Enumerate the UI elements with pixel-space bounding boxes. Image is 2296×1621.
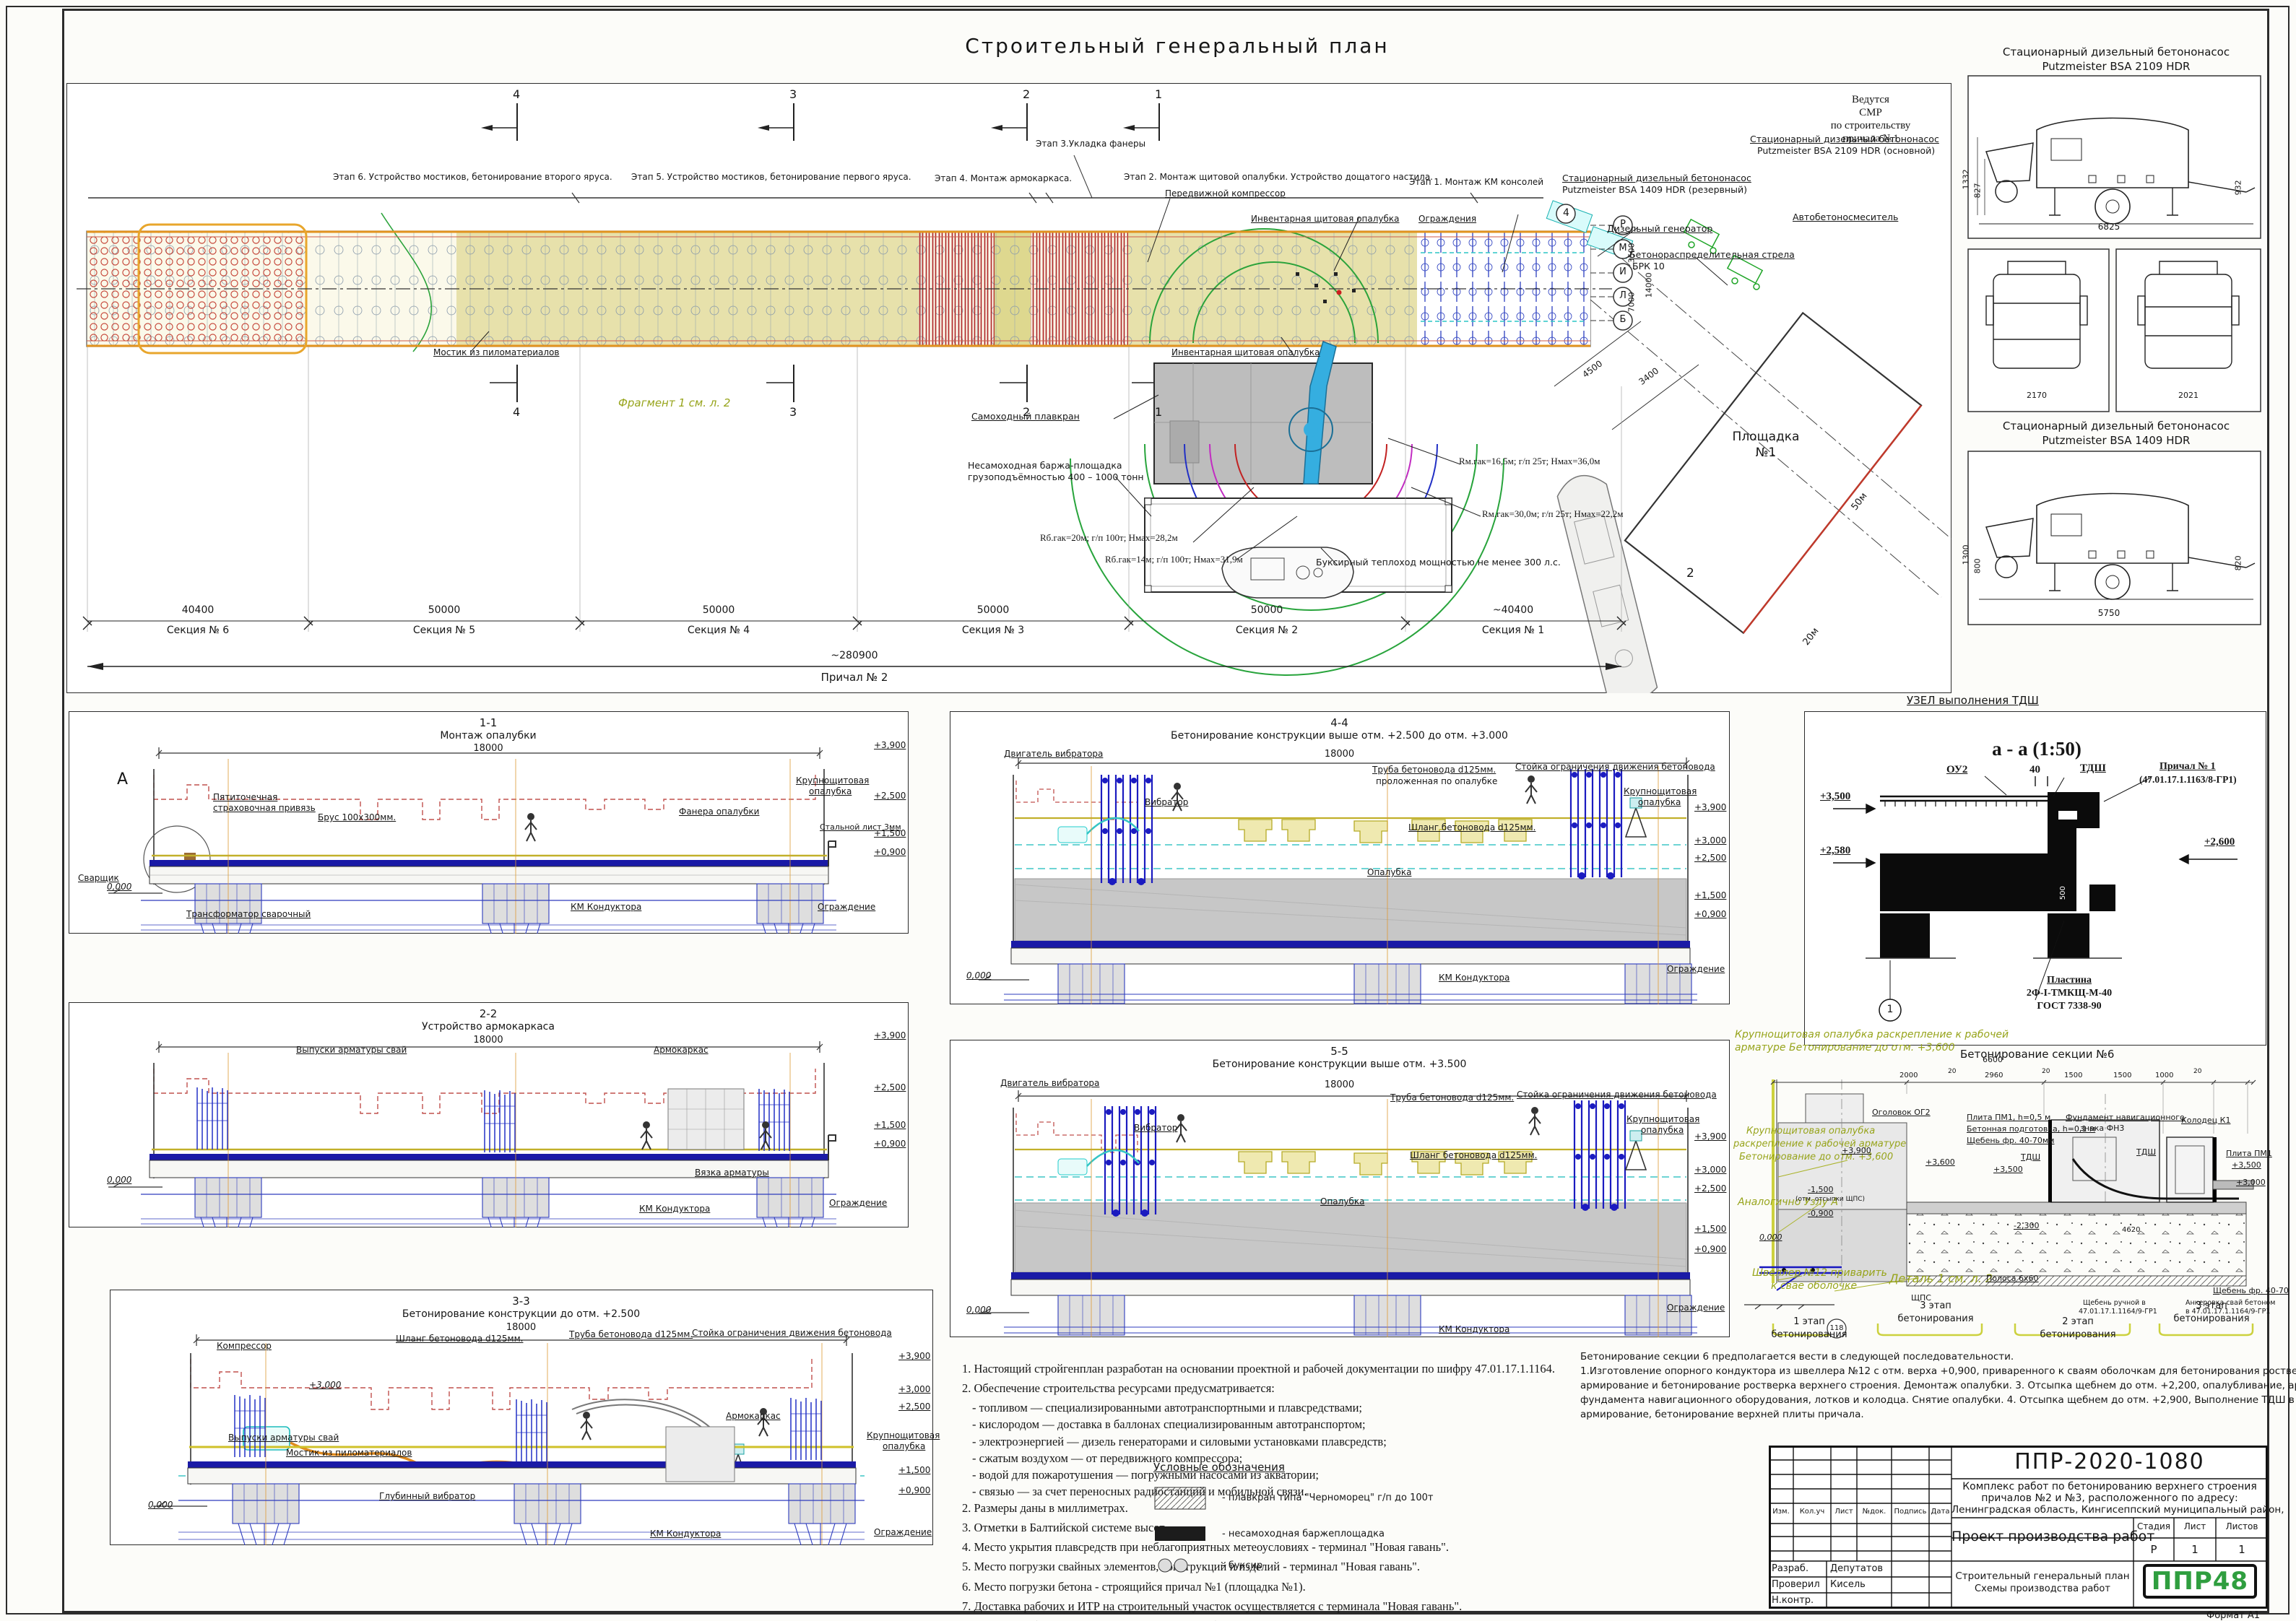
label-smr-2: СМР <box>1798 107 1943 119</box>
tb-stadia-v: Р <box>2133 1544 2174 1556</box>
s11-strap2: страховочная привязь <box>213 804 316 813</box>
d6-green1b: арматуре Бетонирование до отм. +3,600 <box>1735 1043 1954 1054</box>
d6-green4a: Швеллер №12 приварить <box>1752 1268 1887 1279</box>
d6-polosa: Полоса 6х60 <box>1986 1274 2039 1283</box>
s55-hose: Шланг бетоновода d125мм. <box>1410 1151 1537 1160</box>
s22-e2: +1,500 <box>874 1121 906 1130</box>
eq2-dim-h3: 820 <box>2235 555 2243 570</box>
label-fence: Ограждения <box>1418 214 1476 224</box>
stage-label-3: Этап 3.Укладка фанеры <box>1036 139 1145 149</box>
d6-dim-1000: 1000 <box>2155 1072 2173 1079</box>
s55-e0: +3,900 <box>1694 1132 1726 1142</box>
s55-motor: Двигатель вибратора <box>1000 1079 1099 1088</box>
label-r2: Rм.гак=30,0м; г/п 25т; Нмах=22,2м <box>1482 509 1624 520</box>
d6-stage4a: 3 этап <box>2161 1301 2262 1312</box>
s44-krupno1: Крупнощитовая <box>1624 787 1697 796</box>
label-smr-1: Ведутся <box>1798 94 1943 106</box>
vdim-7000: 7000 <box>1628 292 1637 312</box>
label-r4: Rб.гак=14м; г/п 100т; Нмах=31,9м <box>1105 555 1243 565</box>
axis-letter-I: И <box>1618 267 1628 278</box>
d6-stage3a: 2 этап <box>2027 1317 2128 1328</box>
s22-drawing <box>69 1002 909 1227</box>
label-area-2: №1 <box>1712 446 1820 460</box>
tb-stadia-h: Стадия <box>2133 1522 2174 1531</box>
label-barge-1: Несамоходная баржа-площадка <box>968 461 1122 471</box>
name-sec3: Секция № 3 <box>950 625 1036 637</box>
dim-sec1: ~40400 <box>1470 605 1556 617</box>
s11-e1: +2,500 <box>874 791 906 801</box>
d6-plita: Плита ПМ1, h=0,5 м <box>1967 1113 2050 1122</box>
s11-e2: +1,500 <box>874 829 906 838</box>
d6-stage4b: бетонирования <box>2161 1314 2262 1325</box>
s22-armo: Армокаркас <box>654 1046 709 1055</box>
node-pl2: 2Ф-I-ТМКЩ-М-40 <box>2015 988 2123 999</box>
cut-3-top: 3 <box>789 88 797 101</box>
s44-e4: +0,900 <box>1694 910 1726 919</box>
d6-green5: Деталь 1 см. л. 2 <box>1889 1272 1993 1285</box>
tb-h-podpis: Подпись <box>1892 1508 1929 1516</box>
s33-vibro: Глубинный вибратор <box>379 1492 475 1501</box>
d6-dim-20b: 20 <box>2042 1068 2050 1075</box>
s44-zero: 0,000 <box>966 971 991 981</box>
eq2-title-1: Стационарный дизельный бетононасос <box>1979 420 2253 433</box>
eq1-dim-h2: 827 <box>1974 183 1983 198</box>
sequence-line-1: Бетонирование секции 6 предполагается ве… <box>1580 1352 2014 1363</box>
s55-opalubka: Опалубка <box>1320 1197 1364 1207</box>
cut-4-top: 4 <box>513 88 520 101</box>
note-6: 5. Место погрузки свайных элементов, кон… <box>962 1560 1583 1574</box>
s22-vyazka: Вязка арматуры <box>695 1168 769 1178</box>
d6-e35: +3,500 <box>1993 1165 2023 1174</box>
name-sec1: Секция № 1 <box>1470 625 1556 637</box>
format-label: Формат А1 <box>2206 1611 2260 1621</box>
s33-armo: Армокаркас <box>726 1412 781 1421</box>
vdim-14000: 14000 <box>1645 272 1654 297</box>
mark-4-circle: 4 <box>1563 208 1569 220</box>
d6-em15b: (отм. отсыпки ЩПС) <box>1795 1196 1865 1203</box>
stage-label-6: Этап 6. Устройство мостиков, бетонирован… <box>333 173 612 182</box>
d6-dim-1500a: 1500 <box>2064 1072 2082 1079</box>
d6-scheben2: Щебень фр. 40-70 <box>2213 1287 2289 1295</box>
name-sec4: Секция № 4 <box>675 625 762 637</box>
s22-zero: 0,000 <box>107 1175 131 1185</box>
label-r3: Rб.гак=20м; г/п 100т; Нмах=28,2м <box>1040 533 1178 544</box>
d6-dim-2960: 2960 <box>1985 1072 2003 1079</box>
s33-inner: +3,000 <box>309 1381 341 1390</box>
s44-opalubka: Опалубка <box>1367 868 1411 877</box>
legend-crane-icon <box>1155 1487 1205 1509</box>
tb-sheet-title-2: Схемы производства работ <box>1951 1584 2133 1595</box>
label-tug: Буксирный теплоход мощностью не менее 30… <box>1316 557 1561 568</box>
sequence-line-5: армирование, бетонирование верхней плиты… <box>1580 1409 1864 1420</box>
page-title: Строительный генеральный план <box>961 35 1394 57</box>
notes-block: 1. Настоящий стройгенплан разработан на … <box>962 1362 1583 1621</box>
node-tdsh: ТДШ <box>2080 762 2106 775</box>
s33-e1: +3,000 <box>898 1385 930 1394</box>
tb-h-data: Дата <box>1929 1508 1951 1516</box>
label-boom-2: БРК 10 <box>1632 261 1665 271</box>
node-e2: +2,580 <box>1820 845 1850 857</box>
s33-e0: +3,900 <box>898 1352 930 1361</box>
s44-km: КМ Кондуктора <box>1439 973 1509 983</box>
stage-label-4: Этап 4. Монтаж армокаркаса. <box>935 174 1072 183</box>
eq1-dim-h3: 932 <box>2235 180 2243 195</box>
s55-vibro: Вибратор <box>1134 1124 1177 1133</box>
d6-em15: -1,500 <box>1808 1186 1833 1194</box>
d6-dim-1500b: 1500 <box>2113 1072 2131 1079</box>
s55-krupno1: Крупнощитовая <box>1626 1115 1699 1124</box>
area-parallelogram <box>1625 313 1921 633</box>
label-pump-main-2: Putzmeister BSA 2109 HDR (основной) <box>1757 146 1935 156</box>
tb-proveril-name: Кисель <box>1830 1580 1866 1591</box>
tb-h-koluch: Кол.уч <box>1793 1508 1831 1516</box>
s33-fence: Ограждение <box>874 1528 932 1537</box>
note-1: 1. Настоящий стройгенплан разработан на … <box>962 1362 1583 1376</box>
legend-item-3: - буксир <box>1222 1561 1262 1572</box>
d6-em23: -2,300 <box>2014 1222 2039 1230</box>
d6-stage2b: бетонирования <box>1885 1314 1986 1325</box>
s33-e3: +1,500 <box>898 1466 930 1475</box>
tb-proveril: Проверил <box>1772 1580 1820 1591</box>
d6-stage1a: 1 этап <box>1759 1317 1860 1328</box>
legend-item-2: - несамоходная баржеплощадка <box>1222 1529 1385 1540</box>
note-7: 6. Место погрузки бетона - строящийся пр… <box>962 1580 1583 1594</box>
eq1-dim-h1: 1332 <box>1962 169 1971 189</box>
s11-fanera: Фанера опалубки <box>679 807 759 817</box>
tb-listov-h: Листов <box>2216 1522 2268 1531</box>
label-formwork-bottom: Инвентарная щитовая опалубка <box>1171 348 1320 357</box>
d6-fund1: Фундамент навигационного <box>2066 1113 2185 1122</box>
s33-bridge: Мостик из пиломатериалов <box>286 1448 412 1458</box>
d6-fund2: знака ФН3 <box>2080 1124 2124 1133</box>
name-sec5: Секция № 5 <box>401 625 488 637</box>
s11-transf: Трансформатор сварочный <box>186 910 311 919</box>
s11-e3: +0,900 <box>874 848 906 857</box>
legend-barge-icon <box>1155 1526 1205 1541</box>
s22-e0: +3,900 <box>874 1031 906 1040</box>
s22-e1: +2,500 <box>874 1083 906 1092</box>
label-area-1: Площадка <box>1712 430 1820 444</box>
s11-e0: +3,900 <box>874 741 906 750</box>
node-prichal2: (47.01.17.1.1163/8-ГР1) <box>2139 774 2237 785</box>
s44-fence: Ограждение <box>1667 965 1725 974</box>
s33-krupno2: опалубка <box>883 1442 925 1451</box>
s44-e1: +3,000 <box>1694 836 1726 846</box>
legend-title: Условные обозначения <box>1153 1461 1285 1474</box>
node-e1: +3,500 <box>1820 791 1850 803</box>
node-500: 500 <box>2059 886 2067 900</box>
equipment-drawings <box>1964 43 2268 628</box>
sequence-line-3: армирование и бетонирование ростверка ве… <box>1580 1381 2296 1391</box>
pier-strip <box>77 213 1951 597</box>
node-e3: +2,600 <box>2204 836 2235 848</box>
s11-drawing <box>69 711 909 934</box>
dim-sec6: 40400 <box>155 605 241 617</box>
eq-small-dim-2: 2021 <box>2145 391 2232 400</box>
d6-green1a: Крупнощитовая опалубка раскрепление к ра… <box>1735 1030 2009 1041</box>
d6-e39: +3,900 <box>1842 1147 1871 1155</box>
sequence-line-2: 1.Изготовление опорного кондуктора из шв… <box>1580 1366 2296 1377</box>
d6-green2a: Крупнощитовая опалубка <box>1746 1126 1875 1137</box>
eq1-dim-l: 6825 <box>2066 222 2152 232</box>
s44-stand: Стойка ограничения движения бетоновода <box>1515 762 1715 772</box>
stage-label-5: Этап 5. Устройство мостиков, бетонирован… <box>631 173 911 182</box>
s55-e1: +3,000 <box>1694 1165 1726 1175</box>
note-2: 2. Обеспечение строительства ресурсами п… <box>962 1381 1583 1396</box>
axis-letter-R: Р <box>1618 220 1628 230</box>
s33-hose: Шланг бетоновода d125мм. <box>396 1334 523 1344</box>
s44-e2: +2,500 <box>1694 853 1726 863</box>
s44-hose: Шланг бетоновода d125мм. <box>1408 823 1535 833</box>
legend-item-1: - плавкран типа "Черноморец" г/п до 100т <box>1222 1493 1433 1504</box>
label-boom-1: Бетонораспределительная стрела <box>1629 250 1795 260</box>
cut-1-top: 1 <box>1155 88 1162 101</box>
legend-symbols <box>1152 1482 1231 1583</box>
eq2-dim-h2: 800 <box>1974 558 1983 573</box>
node-pl1: Пластина <box>2015 975 2123 986</box>
s11-km: КМ Кондуктора <box>571 903 641 912</box>
label-compressor: Передвижной компрессор <box>1165 189 1286 199</box>
s11-A: А <box>117 771 128 789</box>
d6-zero: 0,000 <box>1759 1233 1782 1242</box>
eq2-title-2: Putzmeister BSA 1409 HDR <box>1979 435 2253 447</box>
s33-e4: +0,900 <box>898 1486 930 1495</box>
d6-dim-6600: 6600 <box>1983 1056 2003 1064</box>
cut-4-bot: 4 <box>513 406 520 419</box>
s55-km: КМ Кондуктора <box>1439 1325 1509 1334</box>
note-2c: - электроэнергией — дизель генераторами … <box>972 1435 1583 1449</box>
d6-e36: +3,600 <box>1925 1158 1955 1167</box>
tb-h-izm: Изм. <box>1769 1508 1793 1516</box>
s44-e3: +1,500 <box>1694 891 1726 900</box>
s11-brus: Брус 100х300мм. <box>318 813 396 822</box>
s55-fence: Ограждение <box>1667 1303 1725 1313</box>
tb-list-h: Лист <box>2174 1522 2216 1531</box>
legend-tug-icon <box>1158 1559 1171 1572</box>
d6-gravel1: Щебень ручной в <box>2083 1300 2146 1308</box>
s22-vypuski: Выпуски арматуры свай <box>296 1046 407 1055</box>
s33-e2: +2,500 <box>898 1402 930 1412</box>
d6-tdsh1: ТДШ <box>2021 1153 2040 1162</box>
d6-plita2: Плита ПМ1 <box>2226 1150 2272 1158</box>
d6-ogolovok: Оголовок ОГ2 <box>1872 1108 1931 1117</box>
label-pump-reserve-1: Стационарный дизельный бетононасос <box>1562 173 1751 183</box>
tb-sheet-title-1: Строительный генеральный план <box>1951 1571 2133 1582</box>
d6-gravel2: 47.01.17.1.1164/9-ГР1 <box>2079 1308 2157 1316</box>
dim-total: ~280900 <box>768 651 941 662</box>
sequence-line-4: фундамента навигационного оборудования, … <box>1580 1395 2296 1406</box>
label-barge-2: грузоподъёмностью 400 – 1000 тонн <box>968 472 1144 482</box>
label-prichal2: Причал № 2 <box>768 672 941 684</box>
s55-krupno2: опалубка <box>1641 1126 1684 1135</box>
s55-e2: +2,500 <box>1694 1184 1726 1194</box>
label-bridge-plan: Мостик из пиломатериалов <box>433 348 559 357</box>
tb-desc-3: Ленинградская область, Кингисеппский мун… <box>1951 1505 2268 1516</box>
dim-sec2: 50000 <box>1223 605 1310 617</box>
name-sec2: Секция № 2 <box>1223 625 1310 637</box>
dim-sec4: 50000 <box>675 605 762 617</box>
note-5: 4. Место укрытия плавсредств при неблаго… <box>962 1540 1583 1555</box>
node-prichal1: Причал № 1 <box>2159 761 2216 773</box>
eq2-dim-h1: 1300 <box>1962 544 1971 565</box>
tb-razrab-name: Депутатов <box>1830 1564 1883 1575</box>
s55-zero: 0,000 <box>966 1305 991 1315</box>
s22-e3: +0,900 <box>874 1139 906 1149</box>
label-formwork-top: Инвентарная щитовая опалубка <box>1251 214 1400 224</box>
d6-stage1b: бетонирования <box>1759 1330 1860 1341</box>
s33-compressor: Компрессор <box>217 1342 272 1351</box>
s11-zero: 0,000 <box>107 882 131 892</box>
tb-doc-type: Проект производства работ <box>1951 1529 2133 1544</box>
label-mixer: Автобетоносмеситель <box>1793 212 1898 222</box>
d6-kolodets: Колодец К1 <box>2181 1116 2230 1125</box>
drawing-sheet: Строительный генеральный план Этап 6. Ус… <box>0 0 2296 1621</box>
tb-list-v: 1 <box>2174 1544 2216 1556</box>
s33-km: КМ Кондуктора <box>650 1529 721 1539</box>
label-pump-reserve-2: Putzmeister BSA 1409 HDR (резервный) <box>1562 185 1747 195</box>
mark-2: 2 <box>1686 567 1694 581</box>
tb-razrab: Разраб. <box>1772 1564 1808 1575</box>
s55-e4: +0,900 <box>1694 1245 1726 1254</box>
tb-listov-v: 1 <box>2216 1544 2268 1556</box>
d6-dim-20c: 20 <box>2193 1068 2201 1075</box>
d6-green2b: раскрепление к рабочей арматуре <box>1733 1139 1906 1150</box>
s11-krupno1: Крупнощитовая <box>796 776 869 786</box>
node-pl3: ГОСТ 7338-90 <box>2015 1001 2123 1012</box>
tb-h-list: Лист <box>1831 1508 1857 1516</box>
name-sec6: Секция № 6 <box>155 625 241 637</box>
node-40: 40 <box>2029 764 2040 776</box>
s33-stand: Стойка ограничения движения бетоновода <box>692 1329 892 1338</box>
cut-3-bot: 3 <box>789 406 797 419</box>
s22-km: КМ Кондуктора <box>639 1204 710 1214</box>
ppr48-logo: ППР48 <box>2143 1564 2257 1599</box>
cut-2-top: 2 <box>1023 88 1030 101</box>
s44-pipe1: Труба бетоновода d125мм. <box>1372 765 1496 775</box>
eq2-dim-l: 5750 <box>2066 609 2152 618</box>
node-scale: а - а (1:50) <box>1878 738 2196 760</box>
s33-pipe: Труба бетоновода d125мм. <box>569 1330 693 1339</box>
d6-em09: -0,900 <box>1808 1209 1833 1218</box>
label-pump-main-1: Стационарный дизельный бетононасос <box>1750 134 1939 144</box>
s44-motor: Двигатель вибратора <box>1004 749 1103 759</box>
d6-podgotovka: Бетонная подготовка, h=0,1 м <box>1967 1125 2095 1134</box>
label-fragment: Фрагмент 1 см. л. 2 <box>618 397 730 409</box>
cut-1-bot: 1 <box>1155 406 1162 419</box>
tb-nkontr: Н.контр. <box>1772 1596 1814 1607</box>
s55-e3: +1,500 <box>1694 1225 1726 1234</box>
note-8: 7. Доставка рабочих и ИТР на строительны… <box>962 1599 1583 1614</box>
dim-sec3: 50000 <box>950 605 1036 617</box>
s33-vypuski: Выпуски арматуры свай <box>228 1433 339 1443</box>
s33-krupno1: Крупнощитовая <box>867 1431 940 1440</box>
s44-krupno2: опалубка <box>1638 798 1681 807</box>
axis-letter-B: Б <box>1618 315 1628 326</box>
label-smr-3: по строительству <box>1798 120 1943 132</box>
node-title: УЗЕЛ выполнения ТДШ <box>1907 695 2039 707</box>
d6-green4b: к свае оболочке <box>1771 1281 1857 1292</box>
d6-er30: +3,000 <box>2236 1178 2266 1187</box>
stage-label-1: Этап 1. Монтаж КМ консолей <box>1409 178 1543 187</box>
s44-e0: +3,900 <box>1694 803 1726 812</box>
s44-pipe2: проложенная по опалубке <box>1376 777 1497 786</box>
s55-stand: Стойка ограничения движения бетоновода <box>1517 1090 1717 1100</box>
d6-stage2a: 3 этап <box>1885 1301 1986 1312</box>
vdim-3500: 3500 <box>1628 243 1637 263</box>
eq-small-dim-1: 2170 <box>1993 391 2080 400</box>
stage-label-2: Этап 2. Монтаж щитовой опалубки. Устройс… <box>1124 173 1433 182</box>
d6-stage3b: бетонирования <box>2027 1330 2128 1341</box>
d6-er35: +3,500 <box>2232 1161 2261 1170</box>
node-oy2: ОУ2 <box>1946 764 1967 776</box>
s11-strap1: Пятиточечная <box>213 793 277 802</box>
d6-dim-20a: 20 <box>1948 1068 1956 1075</box>
dim-sec5: 50000 <box>401 605 488 617</box>
s44-vibro: Вибратор <box>1145 798 1188 807</box>
s11-krupno2: опалубка <box>809 787 852 796</box>
s11-fence: Ограждение <box>818 903 875 912</box>
d6-scheben: Щебень фр. 40-70мм <box>1967 1137 2054 1145</box>
note-2b: - кислородом — доставка в баллонах специ… <box>972 1417 1583 1432</box>
s55-pipe: Труба бетоновода d125мм. <box>1390 1093 1514 1103</box>
label-crane: Самоходный плавкран <box>971 412 1080 422</box>
s22-fence: Ограждение <box>829 1199 887 1208</box>
d6-tdsh2: ТДШ <box>2136 1148 2156 1157</box>
label-r1: Rм.гак=16,5м; г/п 25т; Нмах=36,0м <box>1459 456 1600 467</box>
s33-zero: 0,000 <box>148 1500 173 1510</box>
tb-desc-2: причалов №2 и №3, расположенного по адре… <box>1951 1493 2268 1505</box>
d6-dim-2000: 2000 <box>1899 1072 1918 1079</box>
tb-desc-1: Комплекс работ по бетонированию верхнего… <box>1951 1482 2268 1493</box>
note-2a: - топливом — специализированными автотра… <box>972 1401 1583 1415</box>
moored-barge-ship <box>1554 470 1660 693</box>
node-1: 1 <box>1885 1004 1895 1016</box>
tb-h-doc: №док. <box>1857 1508 1892 1516</box>
d6-dim-4620: 4620 <box>2122 1226 2140 1234</box>
tb-code: ППР-2020-1080 <box>1951 1450 2268 1474</box>
